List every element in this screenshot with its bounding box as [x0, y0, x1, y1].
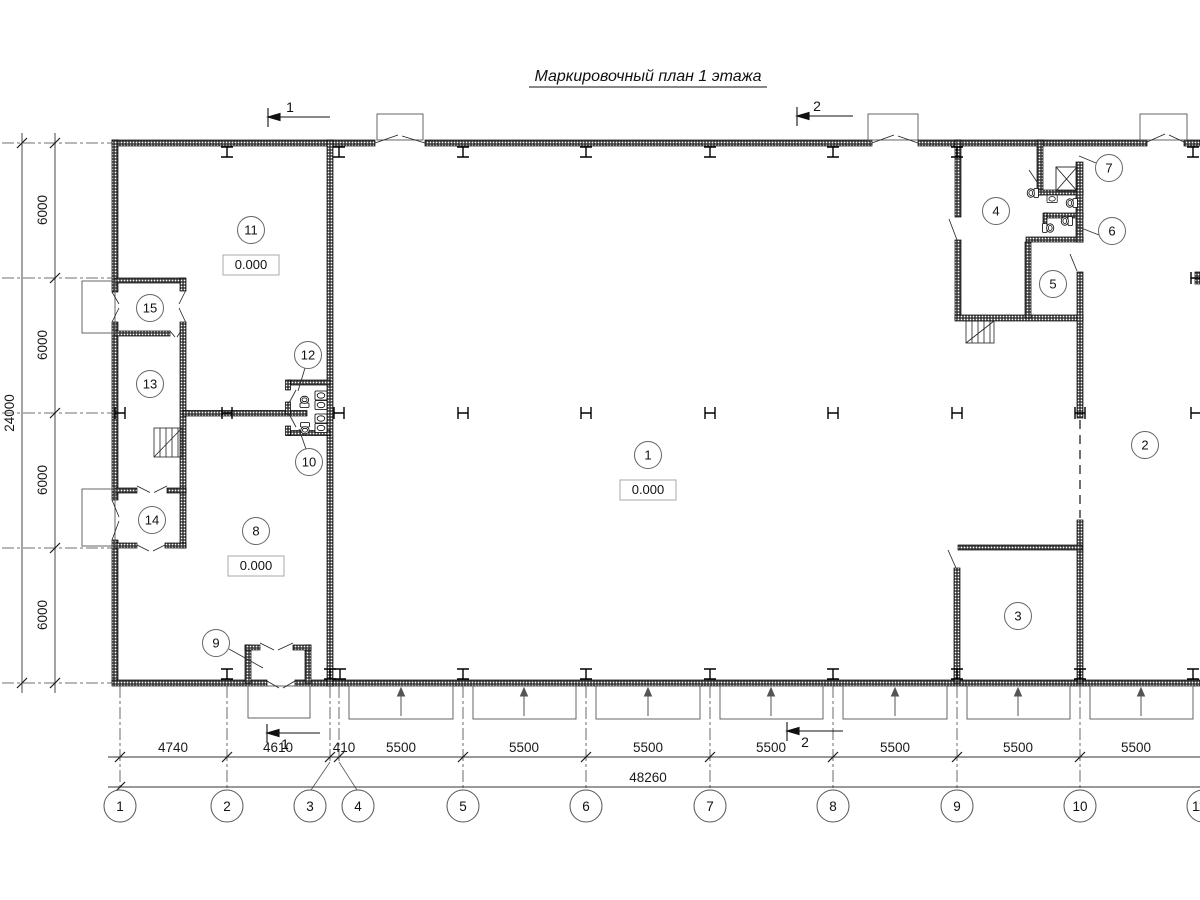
toilet — [1043, 224, 1054, 233]
toilet — [300, 396, 309, 407]
porch-left-2 — [82, 489, 115, 546]
svg-text:9: 9 — [212, 636, 219, 651]
toilet — [301, 423, 310, 434]
svg-text:4: 4 — [992, 204, 999, 219]
dim-left-3: 6000 — [35, 465, 50, 495]
grid-bubble-2: 2 — [223, 799, 231, 814]
grid-bubble-4: 4 — [354, 799, 362, 814]
room-mark-4: 4 — [983, 198, 1010, 225]
svg-text:15: 15 — [143, 301, 157, 316]
svg-text:2: 2 — [813, 98, 821, 114]
gate-break-2 — [872, 135, 918, 143]
svg-text:10: 10 — [302, 455, 316, 470]
section-2-bottom: 2 — [787, 722, 843, 750]
grid-bubbles — [104, 790, 1200, 822]
svg-text:14: 14 — [145, 513, 159, 528]
toilet — [1061, 217, 1072, 226]
svg-text:1: 1 — [286, 99, 294, 115]
room-mark-10: 10 — [296, 429, 323, 476]
vent-shaft — [1056, 167, 1077, 191]
svg-text:2: 2 — [801, 734, 809, 750]
axis-lines — [2, 143, 1080, 789]
porch-room9 — [248, 686, 310, 718]
section-2-top: 2 — [797, 98, 853, 126]
dim-left-4: 6000 — [35, 600, 50, 630]
sink — [315, 424, 327, 433]
room-mark-8: 8 0.000 — [228, 518, 284, 577]
annexes — [82, 114, 1193, 719]
gate-break-1 — [375, 135, 425, 143]
svg-text:12: 12 — [301, 348, 315, 363]
room-mark-5: 5 — [1040, 271, 1067, 298]
dim-total: 48260 — [629, 770, 667, 785]
toilet — [1066, 199, 1077, 208]
dim-5-6: 5500 — [509, 740, 539, 755]
grid-bubble-5: 5 — [459, 799, 467, 814]
axis-bent-leaders — [311, 762, 357, 790]
floor-plan-drawing: Маркировочный план 1 этажа — [0, 0, 1200, 900]
svg-text:13: 13 — [143, 377, 157, 392]
section-marks: 1 2 1 2 — [267, 98, 853, 752]
room-mark-3: 3 — [1005, 603, 1032, 630]
canopy-3 — [1140, 114, 1187, 140]
svg-text:5: 5 — [1049, 277, 1056, 292]
grid-bubble-10: 10 — [1072, 799, 1087, 814]
dim-7-8: 5500 — [756, 740, 786, 755]
room-mark-11: 11 0.000 — [223, 217, 279, 276]
room-mark-1: 1 0.000 — [620, 442, 676, 501]
elevation-room11: 0.000 — [235, 257, 268, 272]
dim-6-7: 5500 — [633, 740, 663, 755]
dim-10-11: 5500 — [1121, 740, 1151, 755]
dim-left-total: 24000 — [2, 394, 17, 432]
svg-text:1: 1 — [644, 448, 651, 463]
stair-exterior — [966, 321, 994, 343]
grid-bubble-3: 3 — [306, 799, 314, 814]
gate-break-3 — [1147, 134, 1184, 142]
grid-bubble-labels: 1 2 3 4 5 6 7 8 9 10 11 — [116, 799, 1200, 814]
floor-plan-sheet: Маркировочный план 1 этажа — [0, 0, 1200, 900]
room-mark-2: 2 — [1132, 432, 1159, 459]
drawing-title: Маркировочный план 1 этажа — [529, 68, 767, 87]
grid-bubble-8: 8 — [829, 799, 837, 814]
dim-left-1: 6000 — [35, 195, 50, 225]
toilet — [1027, 189, 1038, 198]
room-mark-15: 15 — [137, 295, 164, 322]
dimension-lines — [22, 133, 1200, 787]
dim-3-4: 410 — [333, 740, 356, 755]
dimension-ticks — [17, 138, 1085, 792]
dim-8-9: 5500 — [880, 740, 910, 755]
door-leaves — [289, 170, 1077, 568]
grid-bubble-1: 1 — [116, 799, 124, 814]
sink — [1047, 195, 1057, 203]
elevation-room8: 0.000 — [240, 558, 273, 573]
dim-left-2: 6000 — [35, 330, 50, 360]
dim-1-2: 4740 — [158, 740, 188, 755]
title-text: Маркировочный план 1 этажа — [534, 68, 761, 85]
grid-bubble-11: 11 — [1192, 799, 1200, 814]
room-mark-6: 6 — [1076, 218, 1126, 245]
canopy-1 — [377, 114, 423, 140]
section-1-top: 1 — [268, 99, 330, 127]
room-mark-13: 13 — [137, 371, 164, 398]
sink — [315, 401, 327, 410]
sink — [315, 414, 327, 423]
svg-text:2: 2 — [1141, 438, 1148, 453]
elevation-hall: 0.000 — [632, 482, 665, 497]
porch-left-1 — [82, 281, 115, 333]
grid-bubble-7: 7 — [706, 799, 714, 814]
columns-top-row — [221, 147, 1199, 157]
columns-middle-row — [115, 272, 1200, 419]
columns-bottom-row — [221, 669, 1199, 679]
svg-text:3: 3 — [1014, 609, 1021, 624]
room-mark-14: 14 — [139, 507, 166, 534]
grid-bubble-6: 6 — [582, 799, 590, 814]
svg-text:7: 7 — [1105, 161, 1112, 176]
svg-text:6: 6 — [1108, 224, 1115, 239]
stair-room13 — [154, 428, 182, 457]
canopy-2 — [868, 114, 918, 140]
svg-text:8: 8 — [252, 524, 259, 539]
walls — [112, 140, 1200, 686]
dim-9-10: 5500 — [1003, 740, 1033, 755]
svg-text:1: 1 — [281, 736, 289, 752]
room-mark-7: 7 — [1079, 155, 1123, 182]
dim-4-5: 5500 — [386, 740, 416, 755]
grid-bubble-9: 9 — [953, 799, 961, 814]
dock-arrows — [398, 688, 1145, 716]
svg-text:11: 11 — [244, 223, 258, 238]
sink — [315, 391, 327, 400]
